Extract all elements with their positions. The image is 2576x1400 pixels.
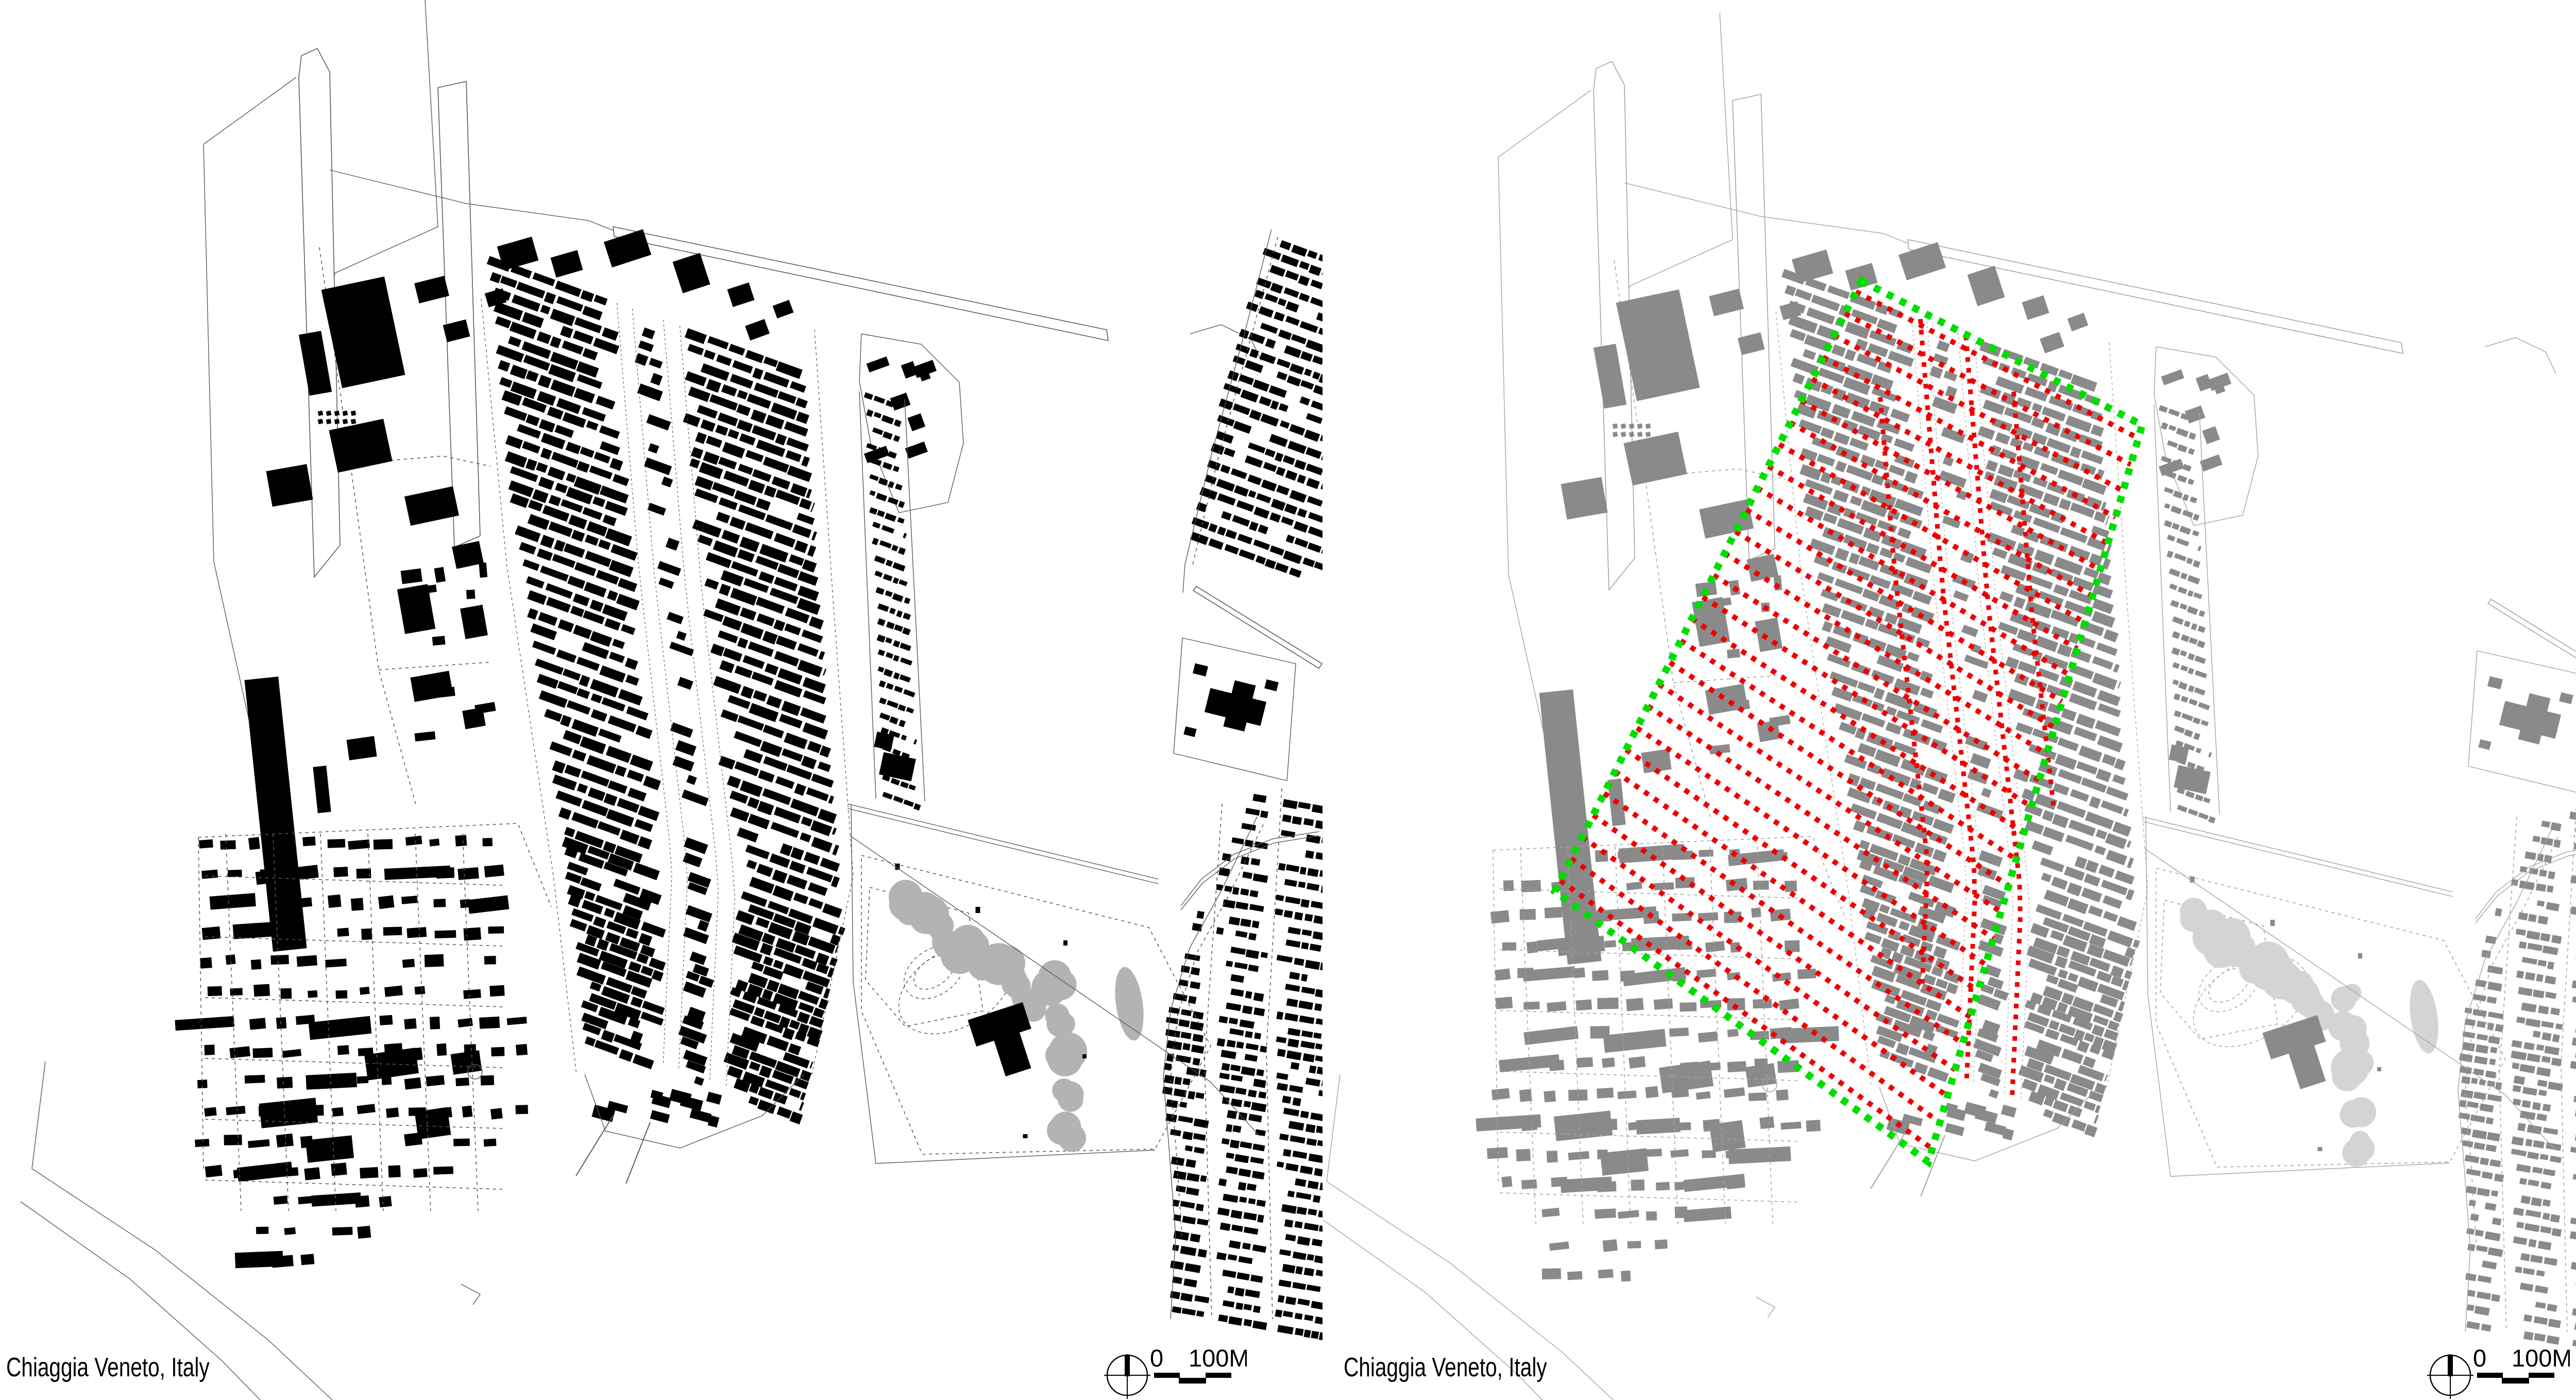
- scale-indicator: 0 100M: [2415, 1332, 2570, 1400]
- map-caption: Chiaggia Veneto, Italy: [6, 1352, 210, 1383]
- figure-ground-map-right: [1323, 0, 2576, 1400]
- map-caption-text: Chiaggia Veneto, Italy: [6, 1353, 210, 1382]
- figure-canvas: Chiaggia Veneto, Italy 0 100M: [0, 0, 2576, 1400]
- map-caption: Chiaggia Veneto, Italy: [1344, 1352, 1547, 1383]
- scale-bar-icon: [1154, 1373, 1231, 1384]
- north-arrow-icon: [2427, 1354, 2473, 1399]
- scale-distance-label: 100M: [1189, 1344, 1247, 1372]
- scale-zero-label: 0: [1150, 1344, 1163, 1372]
- scale-bar-icon: [2477, 1373, 2554, 1384]
- map-panel-right: Chiaggia Veneto, Italy 0 100M: [1323, 0, 2576, 1400]
- map-panel-left: Chiaggia Veneto, Italy 0 100M: [0, 0, 1323, 1400]
- scale-indicator: 0 100M: [1092, 1332, 1247, 1400]
- north-arrow-icon: [1104, 1354, 1150, 1399]
- figure-ground-map-left: [0, 0, 1323, 1400]
- map-caption-text: Chiaggia Veneto, Italy: [1344, 1353, 1547, 1382]
- scale-distance-label: 100M: [2512, 1344, 2570, 1372]
- scale-zero-label: 0: [2473, 1344, 2486, 1372]
